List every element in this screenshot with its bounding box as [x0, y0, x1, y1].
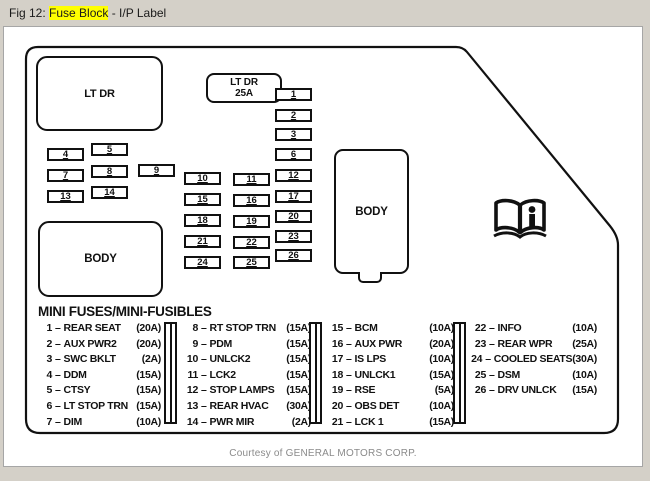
fuse-4: 4 — [47, 148, 84, 161]
legend-separator: – — [489, 384, 495, 396]
fuse-5: 5 — [91, 143, 128, 156]
legend-fuse-number: 26 — [471, 384, 486, 396]
legend-fuse-amperage: (2A) — [142, 353, 161, 365]
legend-fuse-label: OBS DET — [355, 400, 400, 412]
legend-separator: – — [201, 400, 207, 412]
legend-fuse-number: 19 — [328, 384, 343, 396]
legend-entry-12: 12–STOP LAMPS(15A) — [183, 384, 311, 400]
legend-fuse-amperage: (10A) — [572, 369, 597, 381]
relay-body-left: BODY — [38, 221, 163, 297]
legend-fuse-label: RT STOP TRN — [210, 322, 276, 334]
legend-entry-26: 26–DRV UNLCK(15A) — [471, 384, 597, 400]
legend-separator: – — [489, 369, 495, 381]
owner-manual-book-icon — [492, 197, 548, 240]
legend-entry-14: 14–PWR MIR(2A) — [183, 416, 311, 432]
legend-fuse-number: 25 — [471, 369, 486, 381]
legend-separator: – — [201, 322, 207, 334]
legend-divider — [453, 322, 466, 424]
legend-divider — [164, 322, 177, 424]
legend-fuse-label: BCM — [355, 322, 378, 334]
legend-fuse-label: REAR SEAT — [64, 322, 121, 334]
legend-fuse-number: 5 — [37, 384, 52, 396]
legend-fuse-amperage: (10A) — [429, 353, 454, 365]
legend-fuse-amperage: (25A) — [572, 338, 597, 350]
fuse-lt-dr-25a-label: LT DR 25A — [230, 77, 258, 100]
legend-separator: – — [489, 338, 495, 350]
legend-fuse-number: 18 — [328, 369, 343, 381]
fuse-10: 10 — [184, 172, 221, 185]
legend-fuse-label: DSM — [498, 369, 520, 381]
legend-fuse-number: 20 — [328, 400, 343, 412]
legend-entry-18: 18–UNLCK1(15A) — [328, 369, 454, 385]
legend-fuse-label: AUX PWR2 — [64, 338, 117, 350]
legend-fuse-label: INFO — [498, 322, 522, 334]
fuse-2: 2 — [275, 109, 312, 122]
legend-fuse-amperage: (15A) — [429, 416, 454, 428]
legend-entry-20: 20–OBS DET(10A) — [328, 400, 454, 416]
legend-entry-4: 4–DDM(15A) — [37, 369, 161, 385]
legend-separator: – — [489, 322, 495, 334]
fuse-18: 18 — [184, 214, 221, 227]
legend-fuse-label: SWC BKLT — [64, 353, 116, 365]
legend-fuse-amperage: (20A) — [136, 338, 161, 350]
legend-separator: – — [485, 353, 491, 365]
legend-fuse-number: 22 — [471, 322, 486, 334]
relay-lt-dr-label: LT DR — [84, 88, 115, 100]
legend-entry-19: 19–RSE(5A) — [328, 384, 454, 400]
legend-separator: – — [201, 369, 207, 381]
legend-title: MINI FUSES/MINI-FUSIBLES — [38, 304, 212, 319]
legend-fuse-amperage: (15A) — [286, 384, 311, 396]
legend-entry-13: 13–REAR HVAC(30A) — [183, 400, 311, 416]
fuse-8: 8 — [91, 165, 128, 178]
legend-fuse-amperage: (20A) — [136, 322, 161, 334]
legend-fuse-label: CTSY — [64, 384, 91, 396]
legend-entry-17: 17–IS LPS(10A) — [328, 353, 454, 369]
legend-column-4: 22–INFO(10A)23–REAR WPR(25A)24–COOLED SE… — [471, 322, 597, 400]
relay-body-right-label: BODY — [355, 206, 387, 218]
legend-fuse-amperage: (10A) — [136, 416, 161, 428]
legend-column-2: 8–RT STOP TRN(15A)9–PDM(15A)10–UNLCK2(15… — [183, 322, 311, 431]
fuse-14: 14 — [91, 186, 128, 199]
legend-fuse-label: PDM — [210, 338, 232, 350]
legend-fuse-label: AUX PWR — [355, 338, 402, 350]
legend-column-1: 1–REAR SEAT(20A)2–AUX PWR2(20A)3–SWC BKL… — [37, 322, 161, 431]
legend-fuse-number: 16 — [328, 338, 343, 350]
legend-separator: – — [346, 338, 352, 350]
fuse-25: 25 — [233, 256, 270, 269]
legend-entry-16: 16–AUX PWR(20A) — [328, 338, 454, 354]
fuse-12: 12 — [275, 169, 312, 182]
legend-fuse-number: 12 — [183, 384, 198, 396]
legend-separator: – — [55, 384, 61, 396]
legend-fuse-label: LCK2 — [210, 369, 236, 381]
legend-entry-7: 7–DIM(10A) — [37, 416, 161, 432]
legend-separator: – — [201, 338, 207, 350]
legend-fuse-number: 21 — [328, 416, 343, 428]
fuse-7: 7 — [47, 169, 84, 182]
courtesy-credit: Courtesy of GENERAL MOTORS CORP. — [4, 448, 642, 459]
legend-fuse-label: LT STOP TRN — [64, 400, 128, 412]
fuse-16: 16 — [233, 194, 270, 207]
legend-fuse-number: 17 — [328, 353, 343, 365]
legend-separator: – — [55, 416, 61, 428]
legend-fuse-label: REAR WPR — [498, 338, 553, 350]
fuse-9: 9 — [138, 164, 175, 177]
figure-title-prefix: Fig 12: — [9, 6, 49, 20]
legend-fuse-amperage: (30A) — [286, 400, 311, 412]
legend-fuse-number: 3 — [37, 353, 52, 365]
legend-entry-6: 6–LT STOP TRN(15A) — [37, 400, 161, 416]
legend-fuse-label: DIM — [64, 416, 82, 428]
legend-separator: – — [201, 416, 207, 428]
legend-entry-15: 15–BCM(10A) — [328, 322, 454, 338]
legend-fuse-amperage: (15A) — [136, 400, 161, 412]
legend-entry-3: 3–SWC BKLT(2A) — [37, 353, 161, 369]
legend-fuse-number: 24 — [471, 353, 482, 365]
legend-entry-25: 25–DSM(10A) — [471, 369, 597, 385]
legend-entry-21: 21–LCK 1(15A) — [328, 416, 454, 432]
relay-body-left-label: BODY — [84, 253, 116, 265]
figure-viewer-window: Fig 12: Fuse Block - I/P Label LT DR LT … — [0, 0, 650, 481]
legend-entry-11: 11–LCK2(15A) — [183, 369, 311, 385]
relay-lt-dr: LT DR — [36, 56, 163, 131]
legend-fuse-amperage: (10A) — [429, 322, 454, 334]
legend-fuse-number: 15 — [328, 322, 343, 334]
legend-fuse-number: 23 — [471, 338, 486, 350]
figure-title-suffix: - I/P Label — [108, 6, 166, 20]
legend-fuse-number: 6 — [37, 400, 52, 412]
legend-fuse-label: RSE — [355, 384, 376, 396]
fuse-26: 26 — [275, 249, 312, 262]
legend-fuse-label: REAR HVAC — [210, 400, 269, 412]
legend-fuse-number: 11 — [183, 369, 198, 381]
legend-separator: – — [55, 400, 61, 412]
legend-fuse-number: 8 — [183, 322, 198, 334]
legend-fuse-number: 1 — [37, 322, 52, 334]
fuse-22: 22 — [233, 236, 270, 249]
relay-body-right-tab — [358, 272, 382, 283]
legend-separator: – — [346, 416, 352, 428]
legend-fuse-number: 7 — [37, 416, 52, 428]
legend-fuse-amperage: (15A) — [286, 353, 311, 365]
fuse-6: 6 — [275, 148, 312, 161]
legend-fuse-number: 14 — [183, 416, 198, 428]
legend-fuse-label: STOP LAMPS — [210, 384, 275, 396]
legend-separator: – — [346, 369, 352, 381]
fuse-19: 19 — [233, 215, 270, 228]
fuse-17: 17 — [275, 190, 312, 203]
legend-fuse-amperage: (15A) — [136, 384, 161, 396]
legend-fuse-number: 4 — [37, 369, 52, 381]
fuse-11: 11 — [233, 173, 270, 186]
relay-body-right: BODY — [334, 149, 409, 274]
legend-fuse-label: UNLCK1 — [355, 369, 396, 381]
legend-separator: – — [201, 384, 207, 396]
fuse-15: 15 — [184, 193, 221, 206]
legend-separator: – — [346, 353, 352, 365]
legend-fuse-amperage: (15A) — [286, 322, 311, 334]
legend-separator: – — [55, 369, 61, 381]
legend-entry-24: 24–COOLED SEATS(30A) — [471, 353, 597, 369]
fuse-23: 23 — [275, 230, 312, 243]
legend-fuse-amperage: (15A) — [286, 338, 311, 350]
legend-separator: – — [201, 353, 207, 365]
legend-separator: – — [55, 353, 61, 365]
legend-fuse-amperage: (5A) — [435, 384, 454, 396]
fuse-21: 21 — [184, 235, 221, 248]
search-highlight: Fuse Block — [49, 6, 108, 20]
legend-entry-22: 22–INFO(10A) — [471, 322, 597, 338]
legend-fuse-label: IS LPS — [355, 353, 386, 365]
legend-fuse-label: DRV UNLCK — [498, 384, 557, 396]
legend-fuse-label: COOLED SEATS — [494, 353, 572, 365]
legend-separator: – — [55, 338, 61, 350]
legend-separator: – — [346, 322, 352, 334]
legend-fuse-number: 2 — [37, 338, 52, 350]
legend-entry-5: 5–CTSY(15A) — [37, 384, 161, 400]
legend-divider — [309, 322, 322, 424]
legend-column-3: 15–BCM(10A)16–AUX PWR(20A)17–IS LPS(10A)… — [328, 322, 454, 431]
legend-fuse-label: UNLCK2 — [210, 353, 251, 365]
fuse-block-figure: LT DR LT DR 25A BODY BODY 12345678910111… — [3, 26, 643, 467]
fuse-lt-dr-25a: LT DR 25A — [206, 73, 282, 103]
legend-entry-23: 23–REAR WPR(25A) — [471, 338, 597, 354]
legend-entry-10: 10–UNLCK2(15A) — [183, 353, 311, 369]
fuse-1: 1 — [275, 88, 312, 101]
fuse-24: 24 — [184, 256, 221, 269]
figure-title-bar: Fig 12: Fuse Block - I/P Label — [2, 0, 648, 25]
legend-fuse-number: 13 — [183, 400, 198, 412]
legend-fuse-amperage: (15A) — [572, 384, 597, 396]
legend-separator: – — [346, 400, 352, 412]
legend-fuse-amperage: (10A) — [572, 322, 597, 334]
legend-fuse-number: 10 — [183, 353, 198, 365]
fuse-20: 20 — [275, 210, 312, 223]
legend-entry-2: 2–AUX PWR2(20A) — [37, 338, 161, 354]
legend-separator: – — [55, 322, 61, 334]
legend-fuse-amperage: (15A) — [429, 369, 454, 381]
legend-fuse-amperage: (10A) — [429, 400, 454, 412]
legend-fuse-label: PWR MIR — [210, 416, 255, 428]
legend-fuse-label: LCK 1 — [355, 416, 384, 428]
fuse-3: 3 — [275, 128, 312, 141]
legend-fuse-number: 9 — [183, 338, 198, 350]
fuse-13: 13 — [47, 190, 84, 203]
legend-entry-8: 8–RT STOP TRN(15A) — [183, 322, 311, 338]
legend-separator: – — [346, 384, 352, 396]
legend-fuse-amperage: (20A) — [429, 338, 454, 350]
legend-entry-1: 1–REAR SEAT(20A) — [37, 322, 161, 338]
legend-fuse-amperage: (15A) — [136, 369, 161, 381]
legend-fuse-label: DDM — [64, 369, 87, 381]
legend-fuse-amperage: (15A) — [286, 369, 311, 381]
legend-entry-9: 9–PDM(15A) — [183, 338, 311, 354]
legend-fuse-amperage: (30A) — [572, 353, 597, 365]
